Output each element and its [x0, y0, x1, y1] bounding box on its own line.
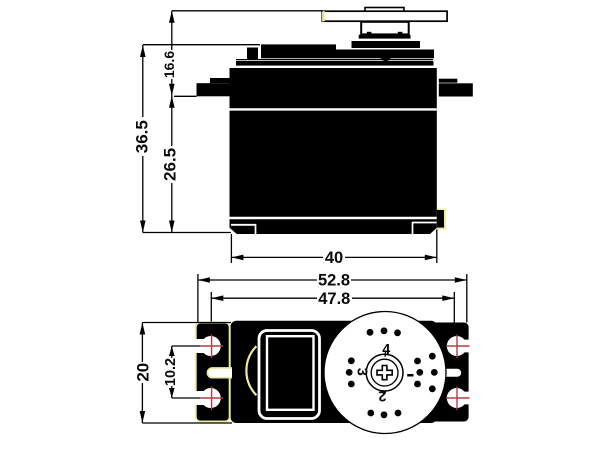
svg-text:52.8: 52.8 [318, 271, 350, 289]
svg-text:10.2: 10.2 [163, 358, 179, 386]
svg-text:26.5: 26.5 [160, 148, 179, 181]
svg-text:36.5: 36.5 [132, 120, 151, 153]
svg-text:4: 4 [382, 342, 390, 358]
svg-text:2: 2 [378, 388, 386, 404]
svg-text:40: 40 [325, 249, 343, 267]
svg-text:3: 3 [353, 368, 369, 376]
svg-text:47.8: 47.8 [318, 290, 350, 308]
svg-text:20: 20 [133, 363, 152, 382]
svg-text:16.6: 16.6 [161, 51, 177, 78]
